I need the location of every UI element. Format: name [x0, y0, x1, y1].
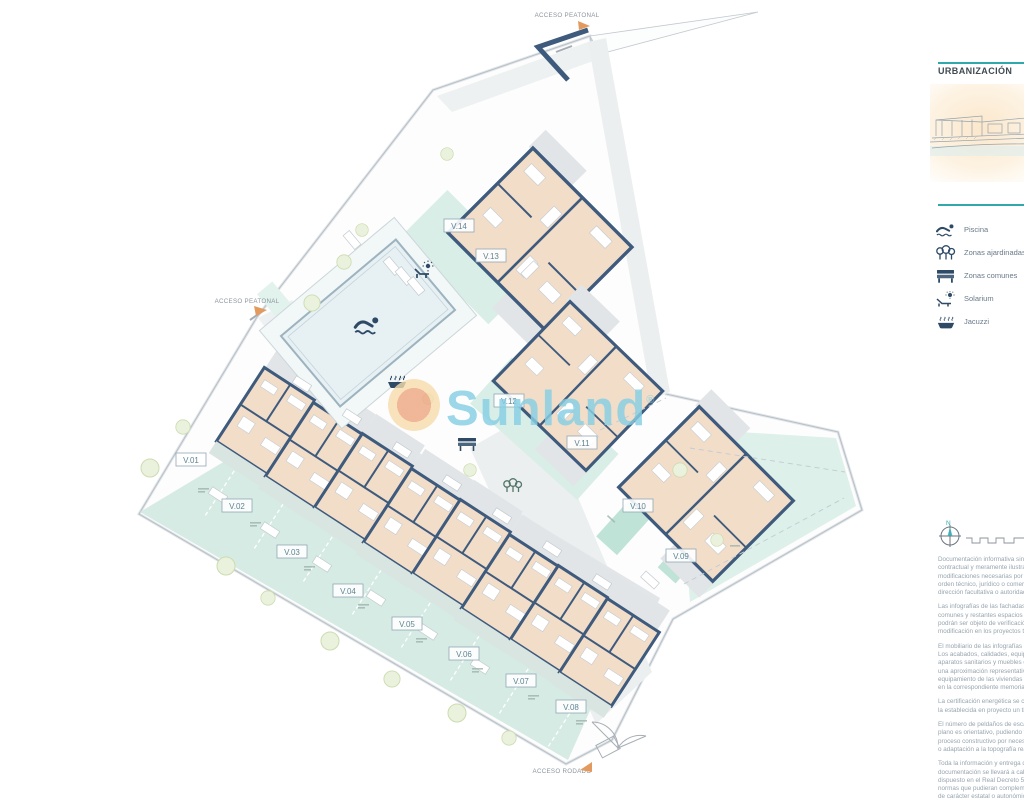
access-label-top: ACCESO PEATONAL — [535, 12, 600, 19]
villa-label: V.03 — [277, 545, 307, 558]
svg-text:V.12: V.12 — [501, 397, 517, 406]
villa-label: V.04 — [333, 584, 363, 597]
jacuzzi-icon — [936, 314, 956, 330]
disclaimer-paragraph: La certificación energética se correspon… — [938, 698, 1024, 715]
villa-label: V.12 — [494, 394, 524, 407]
disclaimer-paragraph: El número de peldaños de escaleras en es… — [938, 721, 1024, 754]
svg-text:V.04: V.04 — [340, 587, 356, 596]
disclaimer-paragraph: Documentación informativa sin carácter c… — [938, 556, 1024, 597]
trees-icon — [936, 245, 956, 261]
svg-text:V.09: V.09 — [673, 552, 689, 561]
svg-text:V.14: V.14 — [451, 222, 467, 231]
villa-label: V.02 — [222, 499, 252, 512]
divider-legend — [938, 204, 1024, 206]
legend-item-zonas-ajardinadas: Zonas ajardinadas — [936, 241, 1024, 264]
legend-item-zonas-comunes: Zonas comunes — [936, 264, 1024, 287]
svg-text:V.08: V.08 — [563, 703, 579, 712]
site-plan: ACCESO PEATONAL ACCESO PEATONAL ACCESO R… — [0, 0, 930, 800]
divider-top — [938, 62, 1024, 64]
urbanization-render-image — [930, 84, 1024, 182]
site-plan-page: ACCESO PEATONAL ACCESO PEATONAL ACCESO R… — [0, 0, 1024, 800]
disclaimer: Documentación informativa sin carácter c… — [938, 556, 1024, 800]
svg-text:V.07: V.07 — [513, 677, 529, 686]
villa-label: V.05 — [392, 617, 422, 630]
villa-label: V.09 — [666, 549, 696, 562]
villa-label: V.08 — [556, 700, 586, 713]
sidebar-title: URBANIZACIÓN — [938, 66, 1012, 76]
disclaimer-paragraph: Toda la información y entrega de documen… — [938, 760, 1024, 800]
compass-row: N — [936, 518, 1024, 558]
legend-label: Jacuzzi — [964, 317, 989, 326]
scale-line — [966, 538, 1024, 543]
villa-label: V.10 — [623, 499, 653, 512]
villa-label: V.07 — [506, 674, 536, 687]
site-plan-drawing: ACCESO PEATONAL ACCESO PEATONAL ACCESO R… — [0, 0, 930, 800]
villa-label: V.11 — [567, 436, 597, 449]
access-arrow-top — [578, 21, 590, 30]
solarium-icon — [936, 291, 956, 307]
legend-label: Piscina — [964, 225, 988, 234]
compass-icon: N — [939, 520, 961, 547]
parcel-sliver — [590, 12, 758, 54]
legend-item-piscina: Piscina — [936, 218, 1024, 241]
svg-text:V.11: V.11 — [574, 439, 590, 448]
disclaimer-paragraph: El mobiliario de las infografías no está… — [938, 643, 1024, 693]
legend-label: Zonas comunes — [964, 271, 1017, 280]
sidebar: URBANIZACIÓN — [930, 0, 1024, 800]
legend-label: Solarium — [964, 294, 994, 303]
legend: Piscina Zonas ajardinadas Zonas comunes — [936, 218, 1024, 333]
gate-leaf-right — [618, 735, 646, 748]
legend-label: Zonas ajardinadas — [964, 248, 1024, 257]
access-label-left: ACCESO PEATONAL — [215, 298, 280, 305]
svg-text:V.13: V.13 — [483, 252, 499, 261]
svg-text:V.05: V.05 — [399, 620, 415, 629]
svg-text:V.10: V.10 — [630, 502, 646, 511]
villa-label: V.13 — [476, 249, 506, 262]
svg-text:V.01: V.01 — [183, 456, 199, 465]
svg-text:V.03: V.03 — [284, 548, 300, 557]
svg-text:V.06: V.06 — [456, 650, 472, 659]
legend-item-jacuzzi: Jacuzzi — [936, 310, 1024, 333]
bench-icon — [936, 268, 956, 284]
legend-item-solarium: Solarium — [936, 287, 1024, 310]
villa-label: V.14 — [444, 219, 474, 232]
villa-label: V.01 — [176, 453, 206, 466]
disclaimer-paragraph: Las infografías de las fachadas, element… — [938, 603, 1024, 636]
swimmer-icon — [936, 222, 956, 238]
villa-label: V.06 — [449, 647, 479, 660]
svg-text:V.02: V.02 — [229, 502, 245, 511]
